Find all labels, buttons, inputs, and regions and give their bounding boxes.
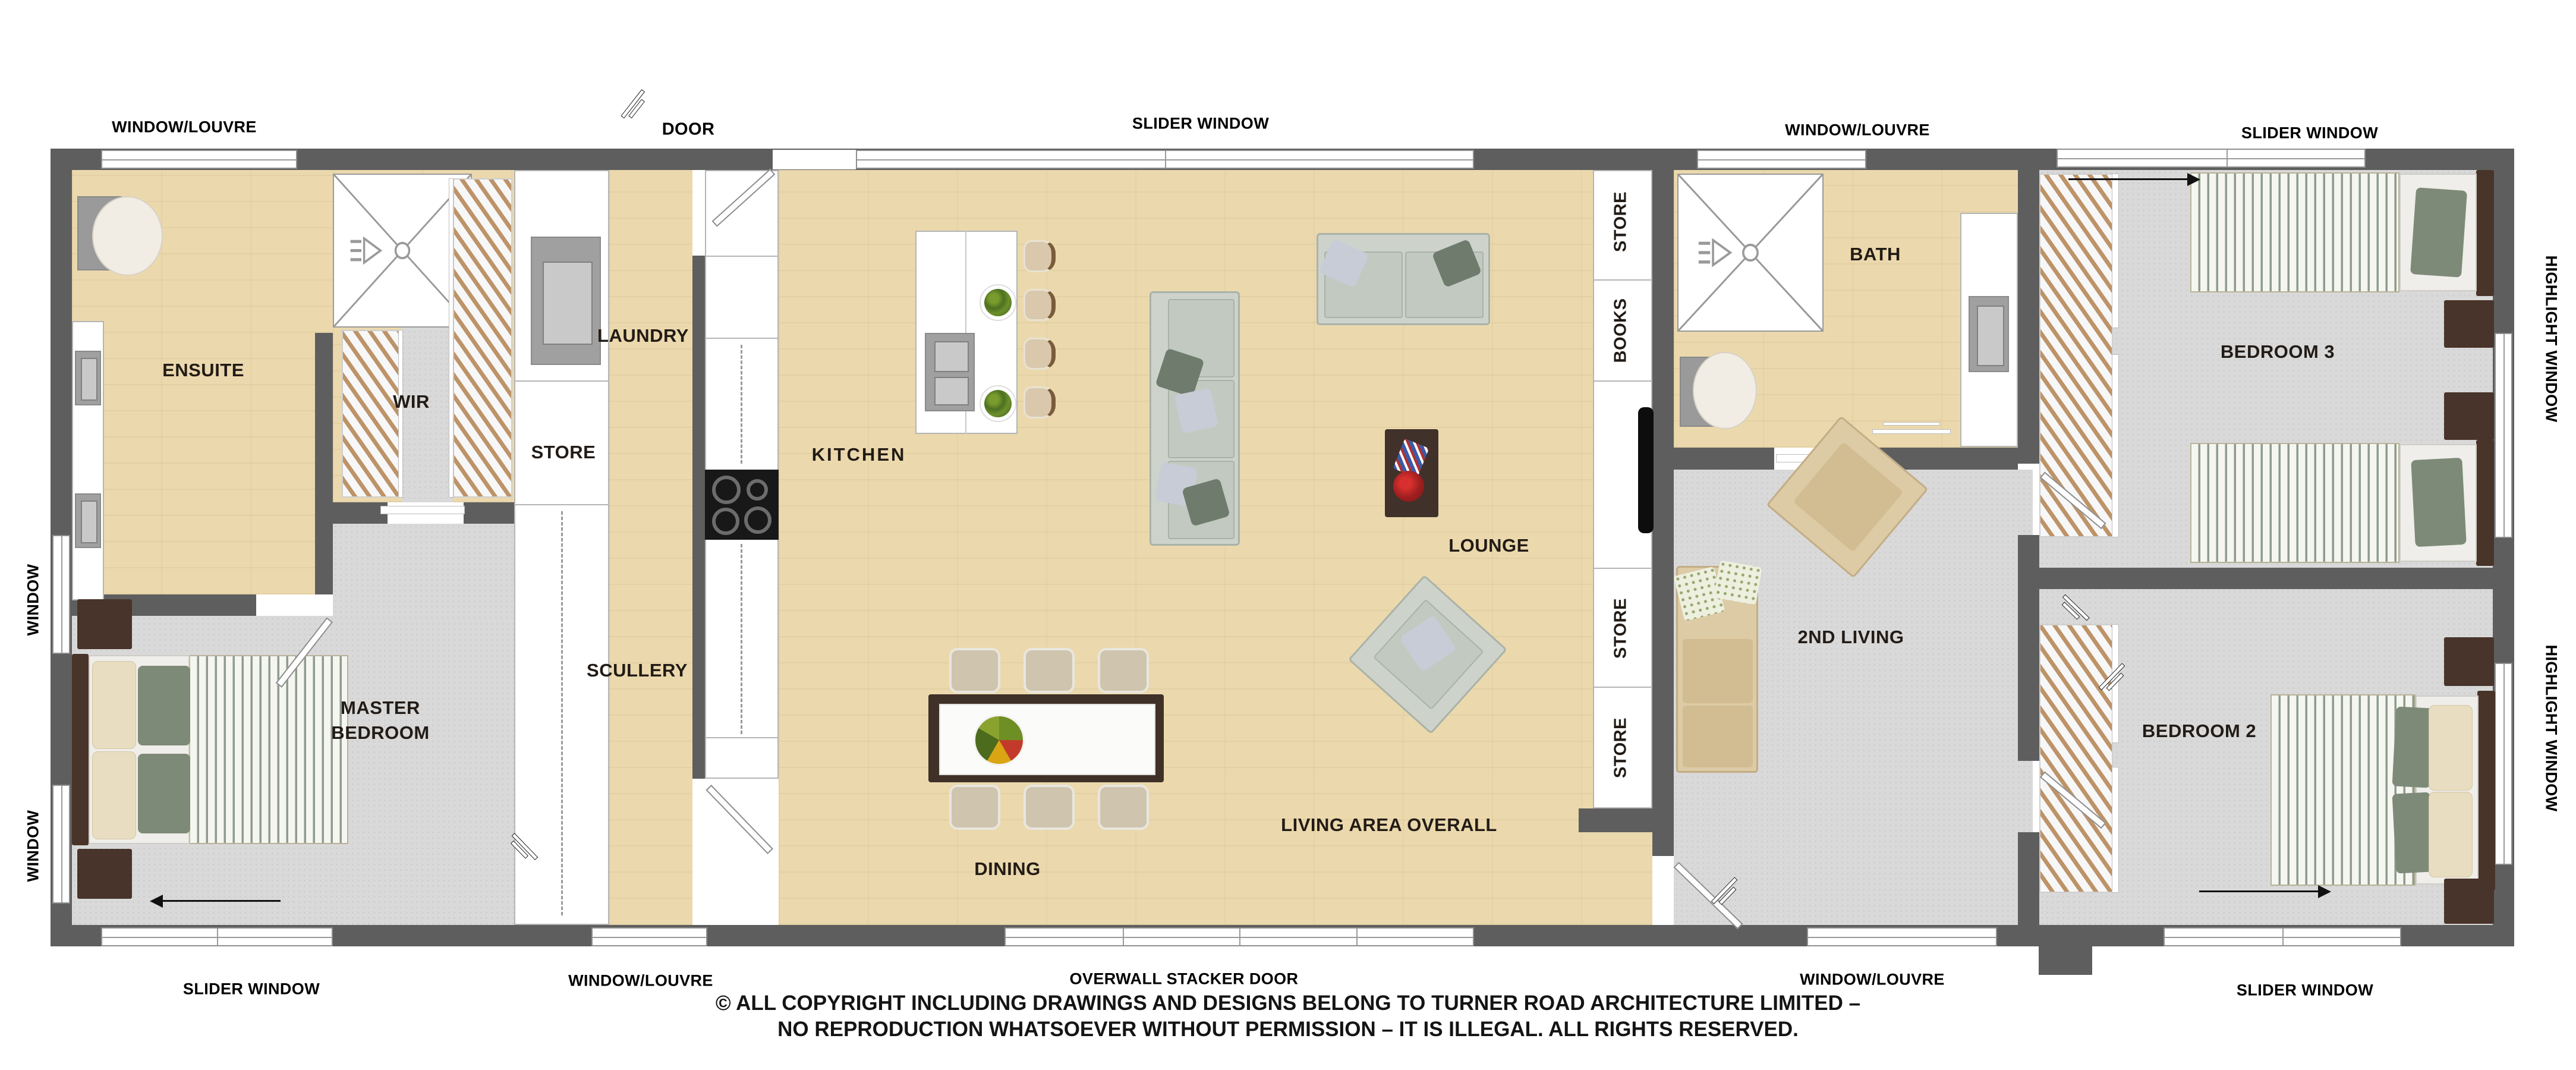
master-pillow-cream-2 <box>92 751 136 839</box>
sink-bowl <box>934 377 969 405</box>
label-store-bottom: STORE <box>1611 717 1631 778</box>
label-books: BOOKS <box>1611 298 1631 363</box>
bench-divider <box>705 737 779 738</box>
cabinet-divider <box>514 380 609 382</box>
pillow-pattern <box>1714 560 1762 605</box>
label-window-louvre-bottom-right: WINDOW/LOUVRE <box>1800 971 1945 989</box>
label-window-louvre-bottom-left: WINDOW/LOUVRE <box>568 972 713 990</box>
wall-ensuite-wir <box>315 333 333 594</box>
wir-rail-right <box>449 178 454 498</box>
bedroom3-slider-arrow-head <box>2187 173 2200 186</box>
slider-window-band-master <box>101 927 333 946</box>
pane-line <box>1356 929 1358 945</box>
pane-line <box>2227 150 2228 166</box>
bed3a-headboard <box>2476 170 2494 296</box>
bath-towel-rail <box>1883 422 1940 426</box>
label-bedroom3: BEDROOM 3 <box>2221 341 2335 363</box>
bench-dashed-line <box>741 544 742 734</box>
copyright-line-1: © ALL COPYRIGHT INCLUDING DRAWINGS AND D… <box>716 992 1860 1015</box>
label-highlight-window-bedroom2: HIGHLIGHT WINDOW <box>2542 645 2561 812</box>
bed2-duvet <box>2270 694 2416 886</box>
label-door-top: DOOR <box>662 120 715 140</box>
bed3a-duvet <box>2190 172 2399 292</box>
wall-wing-a <box>2018 170 2039 464</box>
plant-icon <box>980 284 1016 321</box>
label-lounge: LOUNGE <box>1448 535 1529 556</box>
master-nightstand-1 <box>77 599 132 649</box>
pillow-light <box>1174 388 1218 433</box>
bed2-headboard <box>2477 691 2495 890</box>
master-pillow-cream-1 <box>92 661 136 749</box>
master-entry-carpet <box>333 524 514 619</box>
window-louvre-band-secondliving <box>1807 927 1997 946</box>
bath-toilet-icon <box>1693 352 1757 429</box>
wir-cavity-slider <box>380 506 465 514</box>
master-cushion-green-2 <box>138 754 190 833</box>
bar-stool <box>1024 386 1056 418</box>
label-scullery: SCULLERY <box>587 660 688 681</box>
bedroom2-slider-arrow-line <box>2199 890 2318 892</box>
slider-window-band-bedroom2 <box>2164 927 2401 946</box>
bed2-cushion-green-2 <box>2392 792 2435 873</box>
wall-kitchen-bench <box>692 256 705 779</box>
burner-icon <box>712 476 741 504</box>
cabinet-divider <box>1593 279 1652 281</box>
red-flowers-icon <box>1393 471 1424 502</box>
wall-bedroom3-bedroom2 <box>2018 568 2514 589</box>
label-highlight-window-bedroom3: HIGHLIGHT WINDOW <box>2542 256 2561 423</box>
sofa-cushion <box>1683 639 1753 703</box>
dining-chair <box>1098 785 1149 830</box>
cabinet-divider <box>1593 380 1652 382</box>
bench-dashed-line <box>741 345 742 464</box>
dining-table-top <box>939 704 1155 775</box>
label-window-louvre-top-left: WINDOW/LOUVRE <box>112 118 257 137</box>
label-store-top: STORE <box>1611 191 1631 252</box>
master-bed-headboard <box>72 654 89 845</box>
dining-chair <box>1024 785 1075 830</box>
window-band-left-lower <box>52 785 70 904</box>
label-kitchen: KITCHEN <box>812 444 906 465</box>
basin-bowl <box>1977 306 2004 366</box>
wall-wir-master-b <box>464 502 514 524</box>
basin-bowl <box>81 358 97 401</box>
ensuite-basin-1-icon <box>75 351 101 405</box>
label-dining: DINING <box>974 858 1041 880</box>
label-wir: WIR <box>393 391 430 413</box>
master-cushion-green-1 <box>138 666 190 745</box>
wir-robe-left <box>342 330 401 498</box>
floor-plan-page: ENSUITE WIR MASTER BEDROOM LAUNDRY STORE… <box>0 0 2576 1070</box>
robe-rail <box>2112 174 2119 328</box>
window-band-left-upper <box>52 535 70 654</box>
bedroom2-slider-arrow-head <box>2318 885 2331 898</box>
dining-chair <box>949 648 1000 693</box>
master-slider-arrow-line <box>162 900 281 902</box>
robe-rail <box>2112 767 2119 893</box>
master-nightstand-2 <box>77 849 132 899</box>
sofa-cushion <box>1683 706 1753 767</box>
highlight-window-band-bedroom2 <box>2495 663 2512 865</box>
bed3b-pillow <box>2411 458 2467 547</box>
entry-door-opening <box>773 150 856 169</box>
wall-wing-c <box>2018 832 2039 925</box>
bath-basin-icon <box>1969 296 2009 372</box>
bedroom2-nightstand-1 <box>2444 637 2494 686</box>
bath-shower-icon <box>1677 174 1824 332</box>
plant-leaves <box>984 390 1012 417</box>
cabinet-divider <box>1593 687 1652 688</box>
bed3b-headboard <box>2476 440 2494 566</box>
slider-window-band-living <box>856 150 1474 169</box>
label-slider-window-bedroom2: SLIDER WINDOW <box>2237 981 2373 1000</box>
washing-machine-icon <box>531 237 601 365</box>
wir-aisle-carpet <box>401 324 453 502</box>
bar-stool <box>1024 338 1056 370</box>
window-louvre-band-ensuite <box>101 150 297 169</box>
bar-stool <box>1024 289 1056 321</box>
label-ensuite: ENSUITE <box>162 360 244 381</box>
label-store-hall: STORE <box>531 442 596 463</box>
bar-stool <box>1024 240 1056 272</box>
bed3b-duvet <box>2190 443 2399 563</box>
burner-icon <box>744 506 771 534</box>
fruit-bowl-icon <box>974 715 1025 766</box>
island-sink-icon <box>925 333 975 411</box>
robe-rail <box>2112 354 2119 537</box>
dining-chair <box>949 785 1000 830</box>
bedroom2-robe <box>2039 624 2113 893</box>
label-laundry: LAUNDRY <box>597 325 689 347</box>
ensuite-toilet-icon <box>92 196 163 276</box>
bed3a-pillow <box>2410 187 2467 278</box>
basin-bowl <box>81 501 97 543</box>
wall-step-bottom <box>2039 925 2092 975</box>
wall-living-secondliving <box>1652 170 1674 856</box>
label-window-left-lower: WINDOW <box>24 810 43 882</box>
cabinet-divider <box>1593 568 1652 569</box>
plant-icon <box>980 385 1016 422</box>
bed2-cushion-green-1 <box>2392 706 2435 788</box>
dining-chair <box>1024 648 1075 693</box>
bed2-pillow-cream-1 <box>2429 705 2473 791</box>
label-slider-window-top: SLIDER WINDOW <box>1132 115 1269 133</box>
label-second-living: 2ND LIVING <box>1798 627 1904 648</box>
washer-door <box>543 262 593 345</box>
wir-robe-right <box>453 178 512 498</box>
pane-line <box>1165 151 1166 168</box>
label-master-bedroom: MASTER BEDROOM <box>331 695 429 745</box>
bed2-pillow-cream-2 <box>2429 792 2473 877</box>
label-living-area-overall: LIVING AREA OVERALL <box>1281 814 1497 836</box>
slider-window-band-bedroom3 <box>2057 149 2366 168</box>
bedroom2-nightstand-2 <box>2444 879 2494 924</box>
pane-line <box>2282 929 2284 945</box>
scullery-bench-dashed-line <box>561 511 563 915</box>
armchair-seat <box>1793 442 1903 552</box>
master-bed-duvet <box>189 655 348 844</box>
label-slider-window-bedroom3: SLIDER WINDOW <box>2241 124 2378 143</box>
tv-icon <box>1638 407 1654 533</box>
dining-chair <box>1098 648 1149 693</box>
bedroom3-slider-arrow-line <box>2068 178 2187 180</box>
scullery-door-leaf <box>706 785 773 854</box>
wall-bath-a <box>1674 448 1774 470</box>
window-louvre-band-bath <box>1697 150 1866 169</box>
master-slider-arrow-head <box>150 895 163 908</box>
copyright-line-2: NO REPRODUCTION WHATSOEVER WITHOUT PERMI… <box>777 1018 1799 1041</box>
label-bath: BATH <box>1850 244 1901 265</box>
bench-divider <box>705 338 779 339</box>
highlight-window-band-bedroom3 <box>2495 333 2512 538</box>
wall-wir-master-a <box>333 502 388 524</box>
door-swing-icon <box>621 88 651 122</box>
label-window-left-upper: WINDOW <box>24 564 43 636</box>
sink-bowl <box>934 341 969 372</box>
label-slider-window-master: SLIDER WINDOW <box>183 980 320 999</box>
ensuite-basin-2-icon <box>75 493 101 548</box>
wall-store-column-stub <box>1579 808 1674 832</box>
window-louvre-band-hall <box>591 927 707 946</box>
bath-towel-rail <box>1872 429 1951 434</box>
bedroom3-nightstand-1 <box>2444 300 2494 348</box>
label-stacker-door: OVERWALL STACKER DOOR <box>1070 970 1299 989</box>
plant-leaves <box>984 289 1012 316</box>
label-bedroom2: BEDROOM 2 <box>2142 720 2256 742</box>
pane-line <box>217 929 218 945</box>
stacker-door-band <box>1004 927 1474 946</box>
bench-divider <box>705 256 779 257</box>
burner-icon <box>747 479 768 501</box>
wir-rail-left <box>398 330 403 498</box>
pane-line <box>1123 929 1124 945</box>
burner-icon <box>712 508 739 535</box>
pane-line <box>1239 929 1240 945</box>
bedroom3-nightstand-2 <box>2444 392 2494 440</box>
laundry-scullery-floor <box>609 170 692 925</box>
label-window-louvre-top-right: WINDOW/LOUVRE <box>1785 121 1930 140</box>
label-store-mid: STORE <box>1611 598 1631 659</box>
cabinet-divider <box>514 504 609 505</box>
